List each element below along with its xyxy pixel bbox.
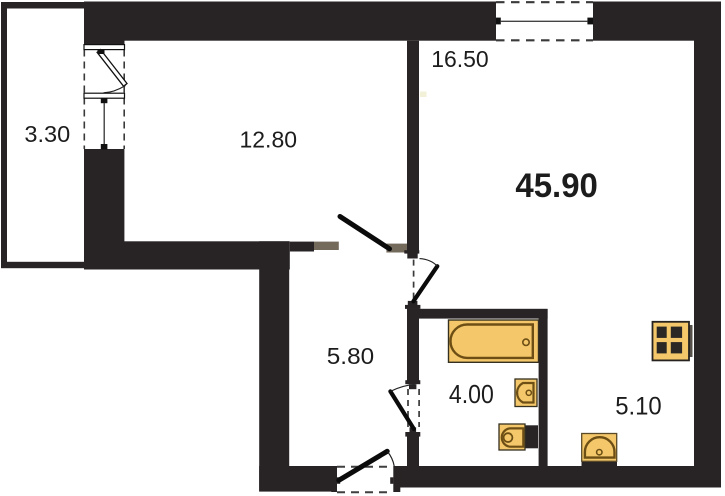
svg-text:45.90: 45.90 <box>515 167 598 205</box>
svg-text:5.10: 5.10 <box>615 393 662 421</box>
svg-text:16.50: 16.50 <box>431 46 489 72</box>
svg-text:12.80: 12.80 <box>240 127 298 153</box>
svg-text:3.30: 3.30 <box>24 121 70 147</box>
svg-text:5.80: 5.80 <box>327 343 374 369</box>
svg-text:4.00: 4.00 <box>449 379 494 409</box>
